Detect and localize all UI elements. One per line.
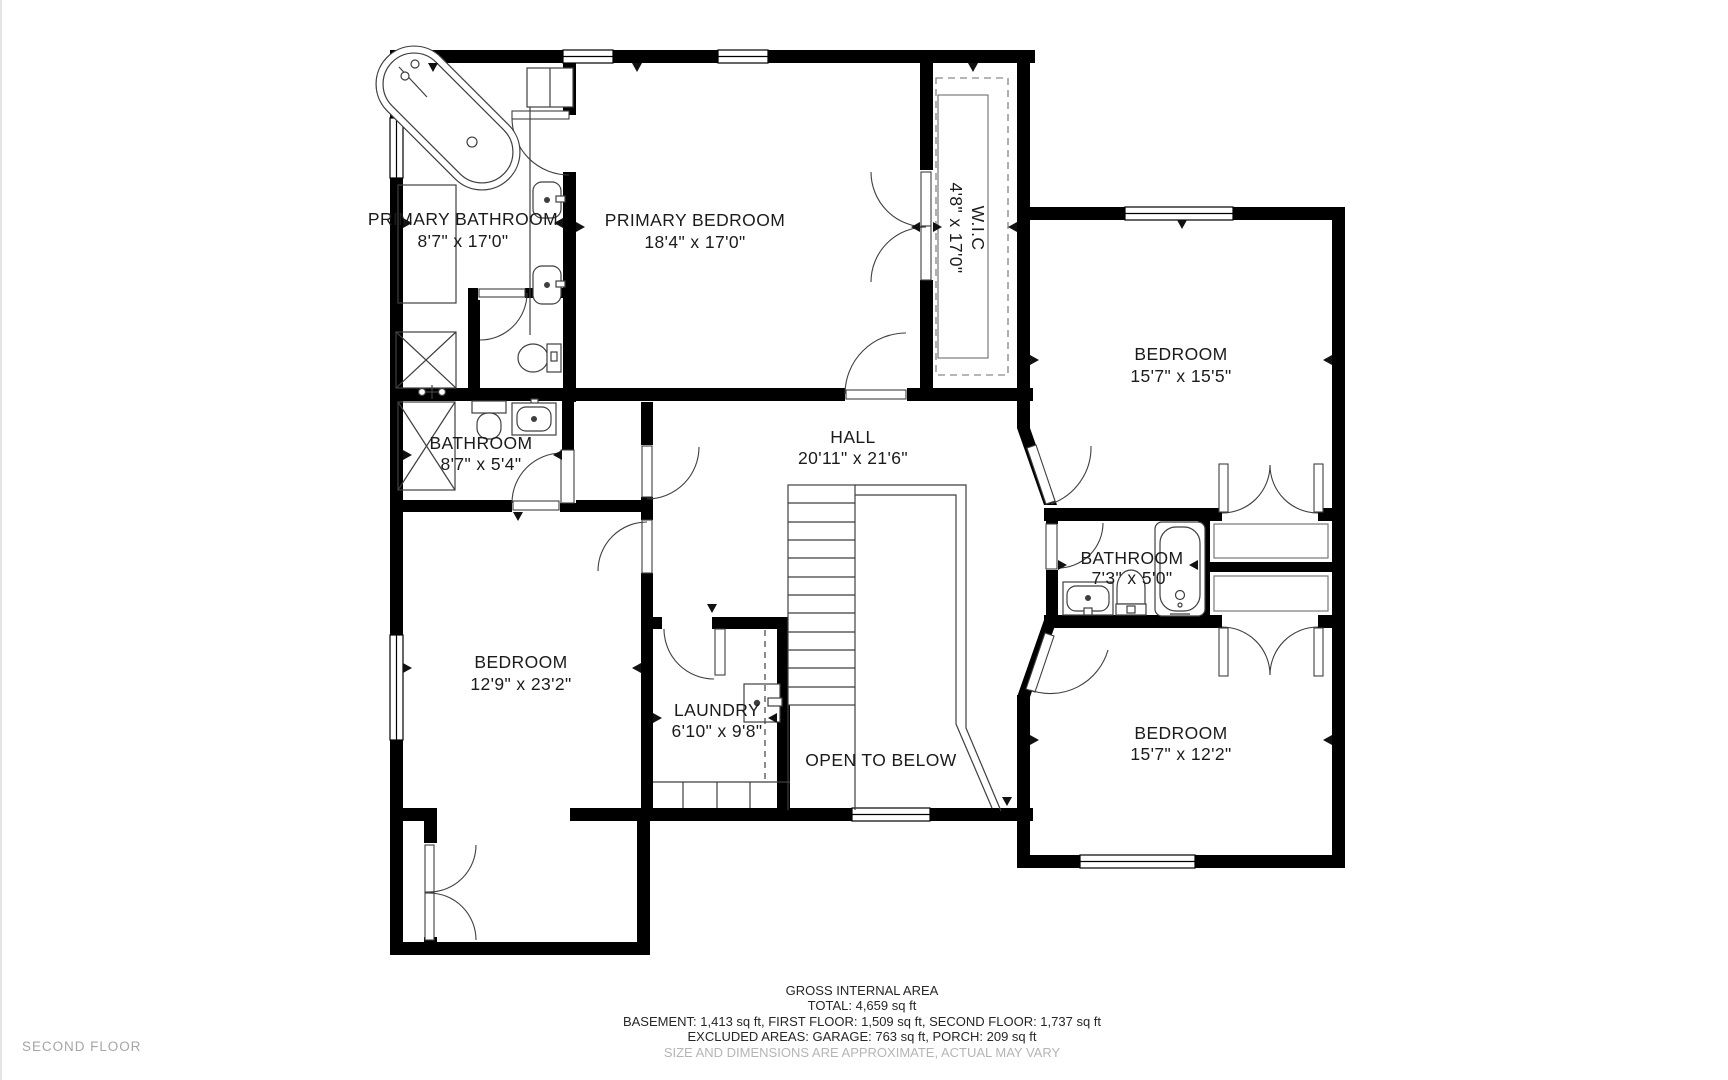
room-dims-bathroom-right: 7'3" x 5'0" [1092,568,1173,588]
room-label-primary-bathroom: PRIMARY BATHROOM [368,209,558,229]
area-summary-disclaimer: SIZE AND DIMENSIONS ARE APPROXIMATE, ACT… [542,1045,1182,1060]
window [718,50,768,63]
door [513,501,559,510]
room-label-hall: HALL [830,427,875,447]
room-label-bathroom-right: BATHROOM [1080,548,1183,568]
window [1125,207,1233,220]
area-summary-total: TOTAL: 4,659 sq ft [542,998,1182,1013]
door [479,289,527,340]
floor-label: SECOND FLOOR [22,1039,141,1054]
door [1027,445,1091,504]
room-label-wic: W.I.C [968,206,988,251]
toilet-icon [518,344,561,372]
room-label-laundry: LAUNDRY [674,700,760,720]
window [852,808,930,821]
french-double-door [425,845,476,940]
closet-shelf [1214,576,1328,611]
room-dims-hall: 20'11" x 21'6" [798,448,908,468]
room-label-primary-bedroom: PRIMARY BEDROOM [605,210,785,230]
room-dims-laundry: 6'10" x 9'8" [671,721,762,741]
room-dims-bedroom-left: 12'9" x 23'2" [470,674,571,694]
door [642,446,699,499]
room-dims-bedroom-top-right: 15'7" x 15'5" [1130,366,1231,386]
double-door [871,172,931,282]
area-summary: GROSS INTERNAL AREA TOTAL: 4,659 sq ft B… [542,983,1182,1060]
room-dims-primary-bedroom: 18'4" x 17'0" [644,232,745,252]
room-label-bedroom-bottom-right: BEDROOM [1134,723,1227,743]
window [390,118,403,178]
room-label-wic-group: W.I.C 4'8" x 17'0" [946,182,988,273]
sink-icon [533,266,565,304]
laundry-counter [653,782,790,808]
closet-double-door [1219,464,1323,513]
closet-double-door [1219,627,1323,676]
closet-shelf [1214,524,1328,558]
window [390,635,403,740]
area-summary-title: GROSS INTERNAL AREA [542,983,1182,998]
room-label-bedroom-top-right: BEDROOM [1134,344,1227,364]
window [1080,855,1195,868]
room-dims-bedroom-bottom-right: 15'7" x 12'2" [1130,744,1231,764]
floorplan-canvas: PRIMARY BATHROOM 8'7" x 17'0" PRIMARY BE… [0,0,1728,1080]
cabinet-icon [527,68,573,107]
door [598,520,652,573]
door [664,629,725,679]
sink-icon [512,399,556,435]
room-label-bedroom-left: BEDROOM [474,652,567,672]
room-dims-wic: 4'8" x 17'0" [946,182,966,273]
area-summary-excluded: EXCLUDED AREAS: GARAGE: 763 sq ft, PORCH… [542,1029,1182,1044]
room-dims-bathroom-middle: 8'7" x 5'4" [441,454,522,474]
door [512,111,569,175]
window [563,50,613,63]
shower-icon [396,332,456,388]
area-summary-breakdown: BASEMENT: 1,413 sq ft, FIRST FLOOR: 1,50… [542,1014,1182,1029]
room-dims-primary-bathroom: 8'7" x 17'0" [417,231,508,251]
room-label-open-to-below: OPEN TO BELOW [805,750,956,770]
room-label-bathroom-middle: BATHROOM [429,433,532,453]
